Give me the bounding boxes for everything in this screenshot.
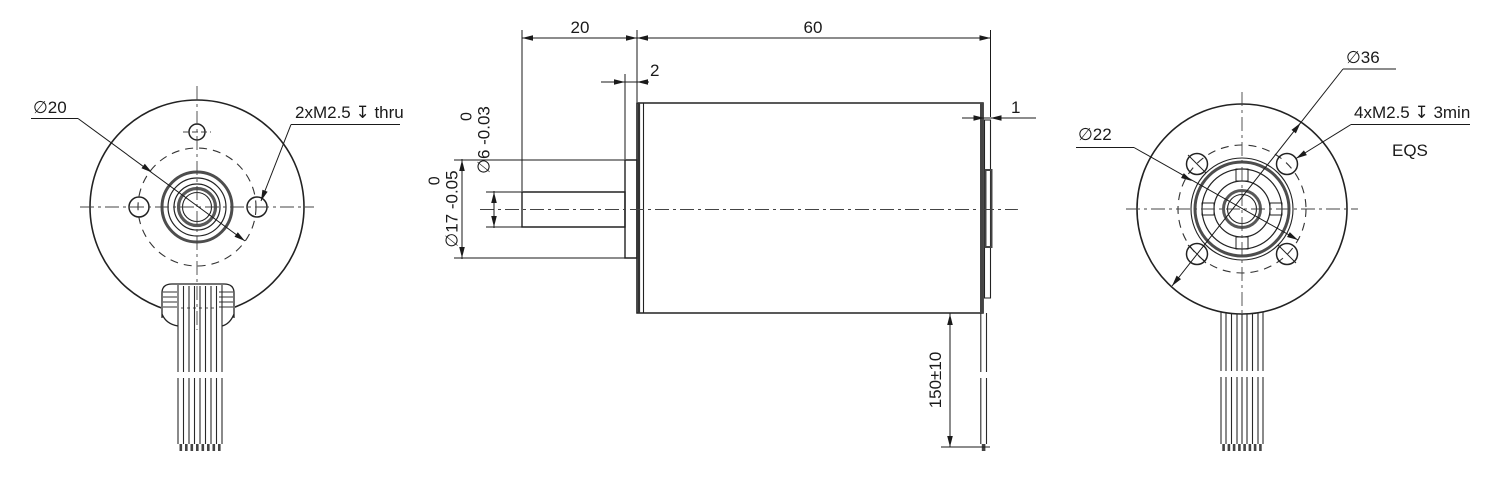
rear-ribbon: [1221, 312, 1263, 451]
dim-body-length: 60: [804, 19, 823, 37]
dim-shaft-length: 20: [571, 19, 590, 37]
boss-dia-upper-tol: 0: [428, 170, 444, 185]
dim-boss-diameter: 0 ∅17 -0.05: [428, 170, 461, 247]
drawing-linework: [0, 0, 1500, 493]
rear-mount-holes-label: 4xM2.5 ↧ 3min: [1354, 104, 1470, 122]
cable-gland-mask: [161, 283, 235, 323]
front-bolt-circle-label: ∅20: [33, 99, 67, 117]
front-wire-pins: [180, 444, 221, 451]
rear-wire-pins: [1222, 444, 1261, 451]
front-mount-holes-label: 2xM2.5 ↧ thru: [295, 104, 404, 122]
rear-spacing-label: EQS: [1392, 142, 1428, 160]
dim-boss-width: 2: [650, 62, 659, 80]
front-holes-arrow: [258, 190, 267, 202]
dia22-diameter-line: [1134, 148, 1298, 241]
dim-cable-length: 150±10: [926, 352, 946, 409]
front-dimension-leaders: [31, 119, 400, 244]
front-boss-outline: [625, 160, 637, 258]
side-dimensions: [454, 30, 1036, 447]
shaft-dia-value: ∅6 -0.03: [476, 106, 493, 174]
side-view: [522, 103, 992, 451]
boss-dia-value: ∅17 -0.05: [444, 170, 461, 247]
side-cable-strip: [981, 313, 987, 444]
rear-bolt-circle-label: ∅22: [1078, 126, 1112, 144]
engineering-drawing-motor: ∅20 2xM2.5 ↧ thru 20 60 2 1 0 ∅6 -0.03 0…: [0, 0, 1500, 493]
dia20-arrow-2: [234, 232, 246, 243]
dim-shaft-diameter: 0 ∅6 -0.03: [460, 106, 493, 174]
rear-dimension-leaders: [1076, 69, 1470, 288]
dim-rear-cap-width: 1: [1011, 99, 1020, 117]
shaft-dia-upper-tol: 0: [460, 106, 476, 121]
rear-connector-outline: [986, 170, 992, 247]
rear-body-dia-label: ∅36: [1346, 49, 1380, 67]
front-centerlines: [80, 86, 314, 330]
motor-body-outline: [637, 103, 983, 313]
front-cable: [161, 283, 235, 451]
rear-centerlines: [1126, 92, 1358, 330]
